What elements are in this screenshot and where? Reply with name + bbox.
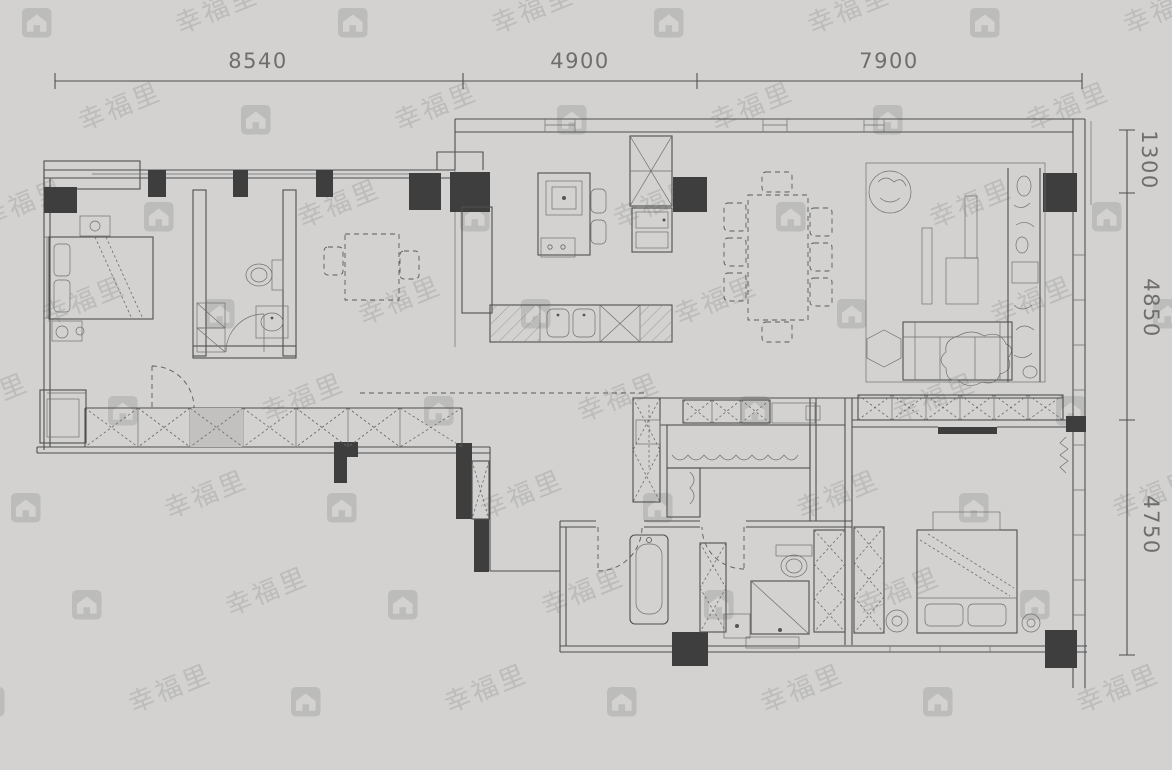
coffee-table xyxy=(946,258,978,304)
watermark-house-icon xyxy=(873,105,903,135)
watermark-house-icon xyxy=(1092,202,1122,232)
dim-label-right-4850: 4850 xyxy=(1139,278,1163,337)
stool xyxy=(591,220,606,244)
watermark-house-icon xyxy=(22,8,52,38)
kitchen xyxy=(462,136,672,342)
pillow xyxy=(968,604,1006,626)
watermark-brand-text: 幸福里 xyxy=(160,465,252,525)
watermark-brand-text: 幸福里 xyxy=(354,271,446,331)
watermark-brand-text: 幸福里 xyxy=(1119,0,1172,40)
watermark-brand-text: 幸福里 xyxy=(293,174,385,234)
watermark-house-icon xyxy=(923,687,953,717)
dining-chair xyxy=(724,203,746,231)
watermark-house-icon xyxy=(643,493,673,523)
toilet-tank xyxy=(272,260,283,290)
watermark-house-icon xyxy=(291,687,321,717)
watermark-brand-text: 幸福里 xyxy=(390,77,482,137)
watermark-house-icon xyxy=(108,396,138,426)
nightstand xyxy=(80,216,110,236)
watermark-brand-text: 幸福里 xyxy=(756,659,848,719)
dining-chair xyxy=(724,238,746,266)
niche-box xyxy=(1012,262,1038,283)
toilet-tank xyxy=(776,545,812,556)
dining-chair xyxy=(810,208,832,236)
watermark-brand-text: 幸福里 xyxy=(803,0,895,40)
watermark-house-icon xyxy=(970,8,1000,38)
watermark-house-icon xyxy=(654,8,684,38)
watermark-brand-text: 幸福里 xyxy=(487,0,579,40)
pillow xyxy=(54,244,70,276)
watermark-house-icon xyxy=(607,687,637,717)
watermark-house-icon xyxy=(704,590,734,620)
dining-chair xyxy=(810,278,832,306)
side-table xyxy=(922,228,932,304)
watermark-brand-text: 幸福里 xyxy=(221,562,313,622)
watermark-house-icon xyxy=(776,202,806,232)
dim-label-right-4750: 4750 xyxy=(1139,495,1163,554)
watermark-house-icon xyxy=(424,396,454,426)
watermark-brand-text: 幸福里 xyxy=(124,659,216,719)
hexagon-table xyxy=(867,330,901,367)
watermark-brand-text: 幸福里 xyxy=(706,77,798,137)
toilet-icon xyxy=(781,555,807,577)
watermark-brand-text: 幸福里 xyxy=(925,174,1017,234)
watermark-brand-text: 幸福里 xyxy=(1072,659,1164,719)
dim-label-right-1300: 1300 xyxy=(1137,130,1161,189)
watermark-house-icon xyxy=(144,202,174,232)
sliding-door-track xyxy=(938,427,997,434)
watermark-house-icon xyxy=(557,105,587,135)
toilet-icon xyxy=(246,264,272,286)
watermark-house-icon xyxy=(11,493,41,523)
hanging-rail xyxy=(667,425,810,468)
plant-icon xyxy=(886,610,908,632)
watermark-brand-text: 幸福里 xyxy=(74,77,166,137)
watermark-house-icon xyxy=(0,687,5,717)
dining-chair xyxy=(810,243,832,271)
watermark-layer: 幸福里幸福里幸福里幸福里幸福里幸福里幸福里幸福里幸福里幸福里幸福里幸福里幸福里幸… xyxy=(0,0,1172,719)
pillow xyxy=(925,604,963,626)
wardrobe xyxy=(814,530,845,632)
plant-icon xyxy=(869,171,911,213)
sofa xyxy=(903,322,1012,380)
watermark-brand-text: 幸福里 xyxy=(171,0,263,40)
watermark-brand-text: 幸福里 xyxy=(670,271,762,331)
dimension-right: 1300 4850 4750 xyxy=(1119,130,1163,655)
watermark-house-icon xyxy=(241,105,271,135)
dimension-top: 8540 4900 7900 xyxy=(55,49,1082,89)
door-swing-dashed xyxy=(152,366,194,408)
door-swing-dashed xyxy=(598,527,642,571)
dining-chair xyxy=(762,172,792,192)
dim-label-top-left: 8540 xyxy=(228,49,287,73)
curtain-icon xyxy=(1060,437,1068,473)
watermark-brand-text: 幸福里 xyxy=(0,368,33,428)
dim-label-top-right: 7900 xyxy=(859,49,918,73)
dim-label-top-middle: 4900 xyxy=(550,49,609,73)
watermark-house-icon xyxy=(338,8,368,38)
watermark-house-icon xyxy=(959,493,989,523)
dining-chair xyxy=(762,322,792,342)
watermark-house-icon xyxy=(72,590,102,620)
bathroom-2 xyxy=(598,527,812,648)
stool xyxy=(591,189,606,213)
floor-plan-screenshot: 幸福里幸福里幸福里幸福里幸福里幸福里幸福里幸福里幸福里幸福里幸福里幸福里幸福里幸… xyxy=(0,0,1172,770)
watermark-house-icon xyxy=(837,299,867,329)
watermark-house-icon xyxy=(327,493,357,523)
watermark-brand-text: 幸福里 xyxy=(440,659,532,719)
watermark-brand-text: 幸福里 xyxy=(1022,77,1114,137)
cooktop xyxy=(541,238,575,257)
watermark-brand-text: 幸福里 xyxy=(257,368,349,428)
watermark-brand-text: 幸福里 xyxy=(792,465,884,525)
watermark-house-icon xyxy=(388,590,418,620)
floor-plan-canvas: 幸福里幸福里幸福里幸福里幸福里幸福里幸福里幸福里幸福里幸福里幸福里幸福里幸福里幸… xyxy=(0,0,1172,770)
